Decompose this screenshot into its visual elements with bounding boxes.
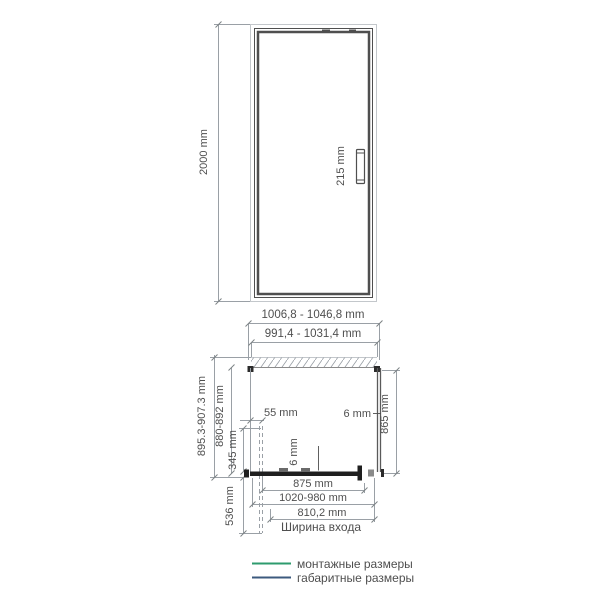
- side-glass-thickness-label: 6 mm: [344, 408, 372, 420]
- mounting-width-dimension: 991,4 - 1031,4 mm: [249, 328, 381, 357]
- panel-connector: [368, 470, 374, 477]
- magnet-profile: [358, 466, 363, 481]
- door-width-label: 875 mm: [293, 478, 333, 490]
- roller-bracket: [301, 468, 310, 472]
- handle-dim-label: 215 mm: [335, 146, 347, 186]
- panel-end-cap: [381, 469, 384, 477]
- left-fixed-dimension: 345 mm: [227, 426, 261, 475]
- wall-offset-label: 55 mm: [264, 407, 298, 419]
- plan-view: 1006,8 - 1046,8 mm 991,4 - 1031,4 mm: [196, 309, 400, 537]
- door-swing-dimension: 536 mm: [224, 475, 262, 537]
- side-glass-thickness-dimension: 6 mm: [344, 408, 382, 420]
- roller-bracket: [279, 468, 288, 472]
- door-handle: 215 mm: [335, 146, 365, 186]
- door-swing-label: 536 mm: [224, 486, 236, 526]
- width-range-dimension: 1020-980 mm: [250, 492, 378, 508]
- shower-door-technical-drawing: 2000 mm 215 mm 1006,8 - 1046,8 mm: [0, 0, 600, 600]
- overall-width-label: 1006,8 - 1046,8 mm: [262, 309, 365, 321]
- mounting-width-label: 991,4 - 1031,4 mm: [265, 328, 362, 340]
- side-panel-depth-label: 865 mm: [379, 394, 391, 434]
- wall-offset-dimension: 55 mm: [240, 407, 298, 424]
- door-glass-thickness-dimension: 6 mm: [288, 438, 319, 470]
- overall-depth-label: 895.3-907.3 mm: [196, 376, 208, 456]
- wall-hatch: [248, 358, 381, 373]
- front-height-dimension: 2000 mm: [198, 22, 250, 305]
- top-rail-mark: [322, 30, 330, 32]
- mounting-depth-label: 880-892 mm: [214, 385, 226, 447]
- legend-mounting-label: монтажные размеры: [297, 557, 413, 571]
- width-range-label: 1020-980 mm: [279, 492, 347, 504]
- entrance-width-caption: Ширина входа: [281, 520, 361, 534]
- left-end-profile: [244, 470, 249, 478]
- door-glass-thickness-label: 6 mm: [288, 438, 300, 466]
- legend-overall-label: габаритные размеры: [297, 571, 414, 585]
- front-view: 2000 mm 215 mm: [198, 22, 377, 305]
- front-height-dim-label: 2000 mm: [198, 129, 210, 175]
- entrance-width-dimension: 810,2 mm Ширина входа: [268, 507, 378, 534]
- top-rail-mark: [349, 30, 356, 32]
- left-fixed-label: 345 mm: [227, 430, 239, 470]
- entrance-width-label: 810,2 mm: [298, 507, 347, 519]
- drawing-svg: 2000 mm 215 mm 1006,8 - 1046,8 mm: [0, 0, 600, 600]
- legend: монтажные размеры габаритные размеры: [252, 557, 414, 585]
- side-panel-depth-dimension: 865 mm: [379, 368, 400, 477]
